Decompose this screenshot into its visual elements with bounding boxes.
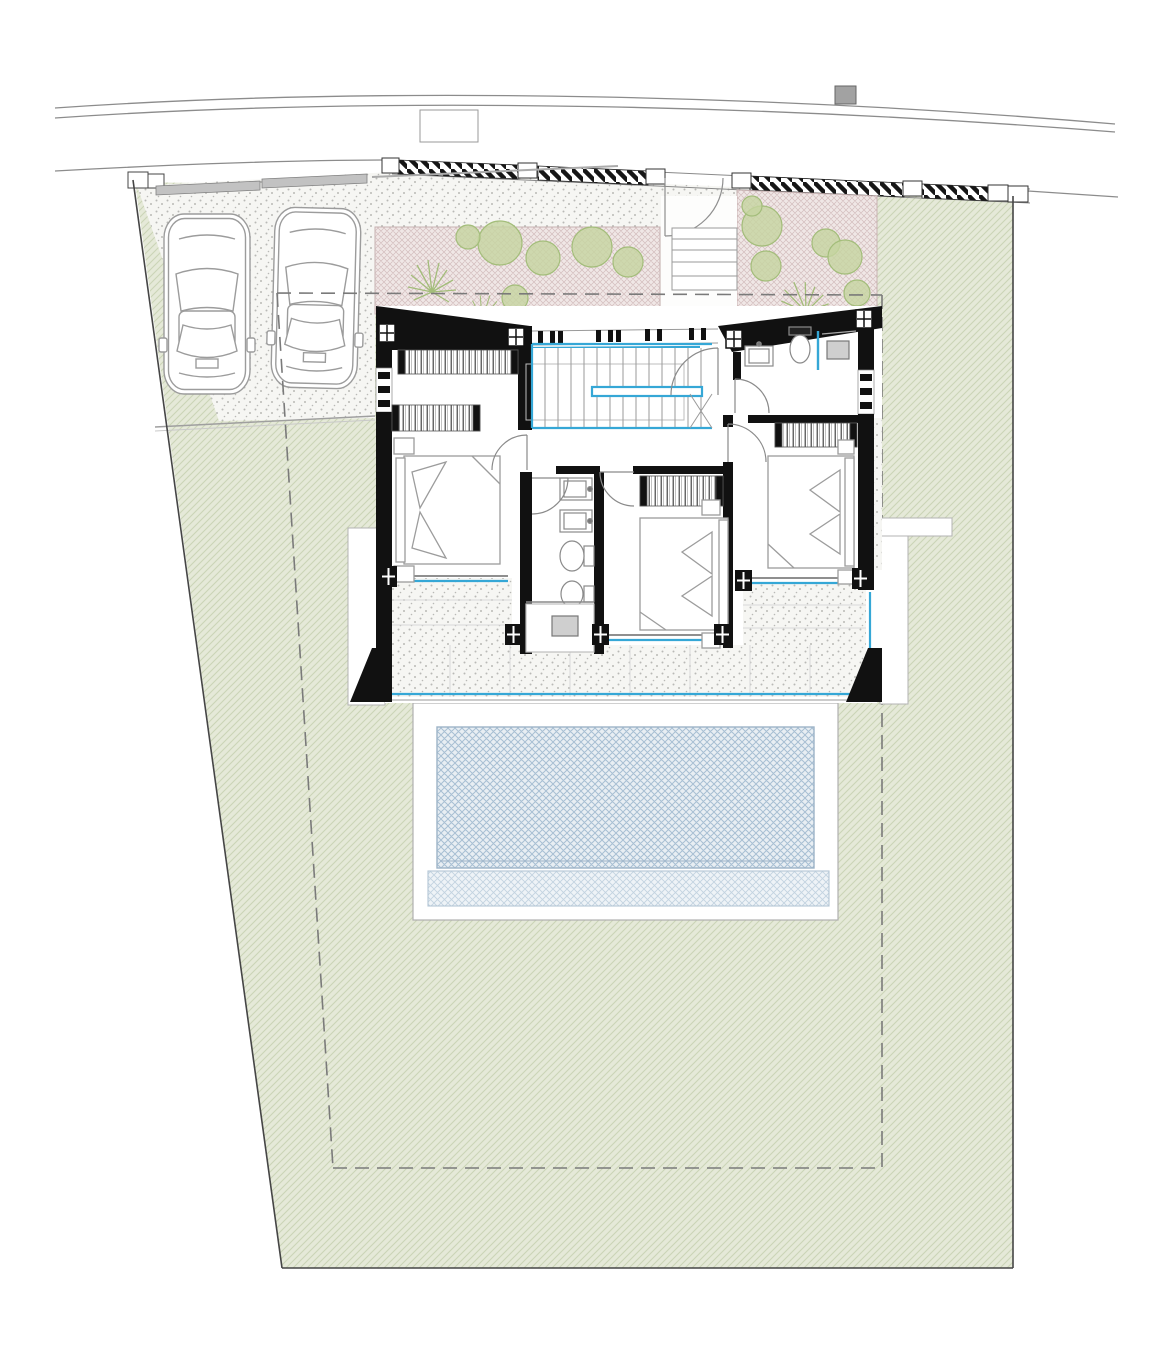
wall-bathroom-south [748,415,858,423]
shrub [456,225,480,249]
window-mullion [558,331,563,343]
shower-drain [827,341,849,359]
mattress [768,456,854,568]
sink-basin [564,513,586,529]
double-bed-left [394,438,500,582]
wall-east [858,328,874,370]
wardrobe [392,405,480,431]
wall-hatch-segment [922,184,990,201]
window-mullion [538,331,543,343]
road-marking [420,110,478,142]
shrub [478,221,522,265]
wall-bathroom-west [733,352,741,380]
wall-west [376,412,392,648]
window-mullion [550,331,555,343]
frame-post [852,568,869,589]
window-mark [860,388,872,395]
boundary-post [382,158,399,173]
house-upper-floor [350,306,882,703]
bidet [561,581,583,607]
shrub [742,196,762,216]
frame-post [714,624,731,645]
shrub [828,240,862,274]
column-post [379,324,395,342]
pool-area [413,703,838,920]
boundary-post [988,185,1008,201]
car [159,214,255,394]
site-plan-drawing [0,0,1170,1365]
headboard [845,458,854,566]
boundary-post [903,181,922,196]
swimming-pool [437,727,814,868]
window-mark [860,374,872,381]
terrace-bottom [392,645,866,697]
double-bed-right [768,440,854,584]
frame-post [735,570,752,591]
boundary-post [1008,186,1028,202]
side-wall-right-bar [880,518,952,536]
plan-sheet [0,0,1170,1365]
frame-post [380,566,397,587]
boundary-post [732,173,751,188]
column-post [508,328,524,346]
boundary-post [128,172,148,188]
nightstand [702,500,720,515]
wall-bathroom-north [556,466,600,474]
column-post [726,330,742,348]
window-mullion [657,329,662,341]
frame-post [505,624,522,645]
nightstand [838,570,854,584]
headboard [396,458,405,562]
toilet [560,541,584,571]
side-wall-right-column [880,536,908,704]
window-glass-line [532,347,700,348]
entry-step-flight [672,228,737,262]
shrub [572,227,612,267]
pool-shallow-ledge [428,871,829,906]
toilet-tank [789,327,811,335]
shower-drain [552,616,578,636]
window-mullion [596,330,601,342]
sink-basin [749,349,769,363]
staircase [526,344,718,428]
faucet [757,342,761,346]
stair-handrail [592,387,702,396]
window-mullion [689,328,694,340]
toilet-tank [584,546,594,566]
window-mark [378,386,390,393]
shrub [751,251,781,281]
wardrobe [398,350,518,374]
faucet [588,487,593,492]
window-mullion [608,330,613,342]
bidet-tap [584,586,594,602]
terrace-strip-east [874,418,882,570]
nightstand [394,438,414,454]
shrub [526,241,560,275]
window-mullion [645,329,650,341]
entry-steps [672,228,737,290]
wall-bedroom-center-north [633,466,723,474]
window-mullion [701,328,706,340]
faucet [588,519,593,524]
window-mullion [616,330,621,342]
utility-box [835,86,856,104]
nightstand [838,440,854,454]
headboard [719,520,728,628]
window-mark [378,400,390,407]
window-mark [378,372,390,379]
frame-post [592,624,609,645]
boundary-post [646,169,665,184]
shrub [613,247,643,277]
shrub [844,280,870,306]
mattress [640,518,728,630]
column-post [856,310,872,328]
window-mark [860,402,872,409]
toilet [790,335,810,363]
wall-east [858,414,874,590]
